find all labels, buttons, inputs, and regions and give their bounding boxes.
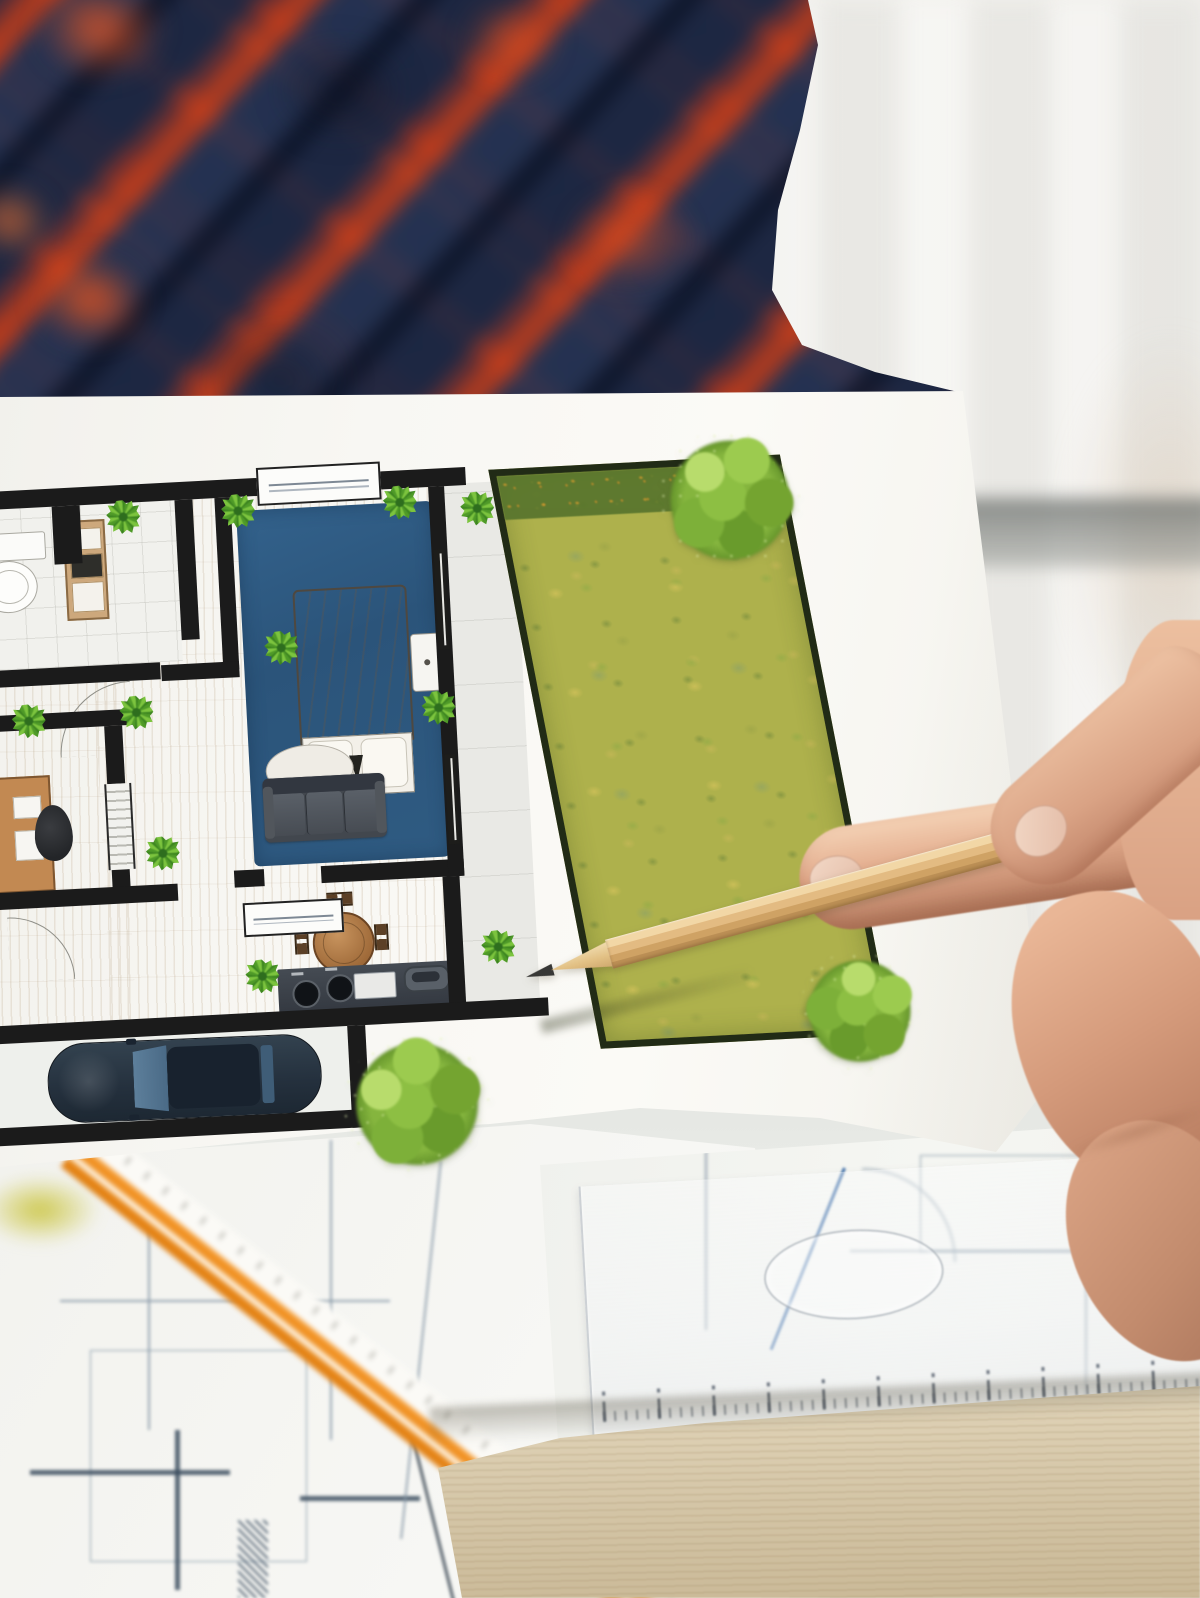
desk-paper: [13, 796, 42, 819]
car-windshield: [132, 1045, 169, 1112]
shelf-cell: [71, 581, 105, 613]
blueprint-wall: [175, 1430, 180, 1590]
kitchen-handle: [403, 965, 450, 993]
hall-window: [243, 898, 345, 937]
burner: [325, 974, 354, 1003]
blueprint-wall: [30, 1470, 230, 1475]
sink: [353, 971, 396, 999]
photo-scene: [0, 0, 1200, 1598]
ruler-oval-cutout: [761, 1224, 946, 1324]
blueprint-line: [400, 1161, 442, 1539]
bedroom-window: [256, 461, 382, 505]
wall-segment: [52, 505, 83, 564]
blueprint-room-outline: [90, 1350, 307, 1562]
blueprint-line: [330, 1140, 332, 1440]
car-mirror: [126, 1039, 136, 1045]
thumbnail: [1004, 794, 1078, 867]
wall-segment: [104, 725, 125, 784]
blueprint-hatched-wall: [238, 1520, 268, 1598]
car: [46, 1033, 321, 1122]
toilet-tank: [0, 531, 46, 563]
car-mirror: [129, 1114, 139, 1120]
glass-door: [104, 783, 135, 870]
bed-blanket: [292, 584, 414, 746]
burner: [292, 979, 321, 1008]
car-roof: [166, 1043, 261, 1109]
model-tree: [660, 430, 800, 570]
kitchen-label: [325, 967, 337, 971]
kitchen-label: [291, 972, 303, 976]
chair: [374, 924, 389, 951]
sofa-cushion: [305, 791, 344, 835]
blueprint-wall: [300, 1496, 420, 1501]
pencil-lead: [524, 964, 554, 983]
car-rear-window: [260, 1045, 274, 1103]
wall-segment: [234, 869, 265, 888]
sofa: [262, 773, 387, 843]
